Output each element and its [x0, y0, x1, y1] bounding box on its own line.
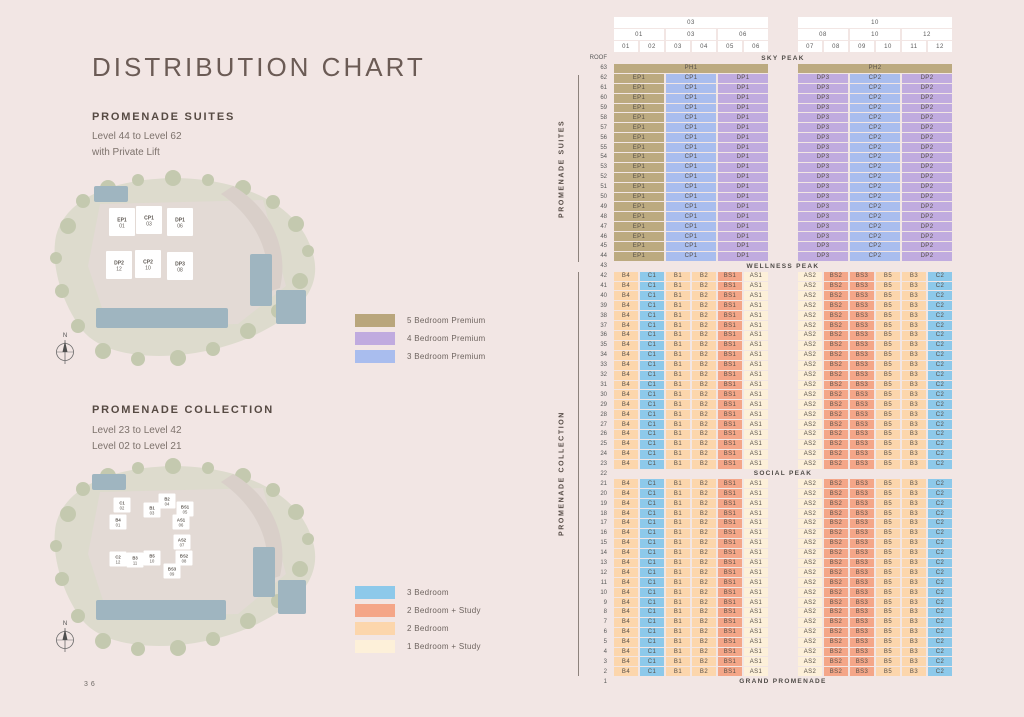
unit-cell: B3 — [902, 519, 926, 528]
collection-level-range-1: Level 23 to Level 42 — [92, 423, 182, 439]
unit-cell: C1 — [640, 608, 664, 617]
unit-cell: BS3 — [850, 588, 874, 597]
unit-cell: C1 — [640, 272, 664, 281]
unit-cell: B5 — [876, 568, 900, 577]
unit-cell: BS2 — [824, 361, 848, 370]
unit-cell: B1 — [666, 608, 690, 617]
unit-cell: BS1 — [718, 499, 742, 508]
unit-cell: DP3 — [798, 163, 848, 172]
unit-cell: EP1 — [614, 74, 664, 83]
unit-cell: DP3 — [798, 183, 848, 192]
unit-cell: B2 — [692, 648, 716, 657]
compass-north-label: N — [63, 333, 67, 339]
unit-cell: AS1 — [744, 430, 768, 439]
unit-cell: DP3 — [798, 193, 848, 202]
unit-cell: C1 — [640, 331, 664, 340]
floor-number: 27 — [588, 420, 612, 429]
unit-cell: B4 — [614, 489, 638, 498]
legend-swatch — [355, 350, 395, 363]
unit-cell: C1 — [640, 479, 664, 488]
unit-cell: C2 — [928, 341, 952, 350]
unit-cell: BS1 — [718, 568, 742, 577]
building-stack: 12 — [116, 267, 122, 273]
unit-cell: B4 — [614, 499, 638, 508]
unit-cell: B4 — [614, 311, 638, 320]
unit-cell: BS2 — [824, 648, 848, 657]
unit-cell: B1 — [666, 440, 690, 449]
unit-cell: B5 — [876, 381, 900, 390]
unit-cell: B3 — [902, 648, 926, 657]
unit-cell: C2 — [928, 618, 952, 627]
unit-cell: B2 — [692, 381, 716, 390]
building-stack: 02 — [120, 506, 125, 511]
bracket-collection — [578, 272, 579, 676]
unit-cell: B1 — [666, 618, 690, 627]
unit-cell: BS1 — [718, 341, 742, 350]
stack-group-header: 03 — [666, 29, 716, 40]
building-stack: 03 — [146, 222, 152, 228]
unit-cell: BS1 — [718, 400, 742, 409]
unit-cell: CP1 — [666, 232, 716, 241]
stack-group-header: 01 — [614, 29, 664, 40]
unit-cell: AS1 — [744, 568, 768, 577]
unit-cell: C1 — [640, 371, 664, 380]
unit-cell: AS2 — [798, 578, 822, 587]
unit-cell: C1 — [640, 450, 664, 459]
unit-cell: C2 — [928, 272, 952, 281]
unit-cell: C1 — [640, 341, 664, 350]
unit-cell: EP1 — [614, 252, 664, 261]
unit-cell: B4 — [614, 291, 638, 300]
unit-cell: BS1 — [718, 361, 742, 370]
unit-cell: AS2 — [798, 499, 822, 508]
unit-cell: AS2 — [798, 282, 822, 291]
unit-cell: B5 — [876, 489, 900, 498]
stack-group-header: 06 — [718, 29, 768, 40]
unit-cell: DP2 — [902, 183, 952, 192]
unit-cell: DP2 — [902, 123, 952, 132]
building-stack: 11 — [133, 561, 138, 566]
unit-cell: EP1 — [614, 202, 664, 211]
unit-cell: B3 — [902, 341, 926, 350]
unit-cell: C2 — [928, 657, 952, 666]
unit-cell: B1 — [666, 479, 690, 488]
unit-cell: B5 — [876, 519, 900, 528]
unit-cell: C2 — [928, 588, 952, 597]
unit-cell: B1 — [666, 509, 690, 518]
unit-cell: B4 — [614, 440, 638, 449]
unit-cell: BS1 — [718, 628, 742, 637]
unit-cell: B3 — [902, 400, 926, 409]
stack-header: 07 — [798, 41, 822, 52]
floor-number: 45 — [588, 242, 612, 251]
unit-cell: BS2 — [824, 657, 848, 666]
unit-cell: B4 — [614, 667, 638, 676]
unit-cell: B1 — [666, 529, 690, 538]
unit-cell: BS3 — [850, 450, 874, 459]
unit-cell: B2 — [692, 410, 716, 419]
unit-cell: B5 — [876, 608, 900, 617]
legend-label: 5 Bedroom Premium — [407, 316, 485, 325]
floor-number: 26 — [588, 430, 612, 439]
unit-cell: CP1 — [666, 252, 716, 261]
unit-cell: B3 — [902, 598, 926, 607]
floor-number: 41 — [588, 282, 612, 291]
unit-cell: AS2 — [798, 361, 822, 370]
unit-cell: B5 — [876, 400, 900, 409]
unit-cell: C2 — [928, 301, 952, 310]
unit-cell: B4 — [614, 608, 638, 617]
unit-cell: BS2 — [824, 460, 848, 469]
unit-cell: B1 — [666, 321, 690, 330]
suites-private-lift-note: with Private Lift — [92, 145, 160, 161]
legend-item: 2 Bedroom + Study — [355, 604, 481, 617]
brochure-page: DISTRIBUTION CHART PROMENADE SUITES Leve… — [0, 0, 1024, 717]
unit-cell: B5 — [876, 390, 900, 399]
unit-cell: C2 — [928, 608, 952, 617]
unit-cell: AS1 — [744, 529, 768, 538]
unit-cell: AS2 — [798, 420, 822, 429]
floor-number: 31 — [588, 381, 612, 390]
unit-cell: BS3 — [850, 509, 874, 518]
unit-cell: B1 — [666, 291, 690, 300]
unit-cell: BS2 — [824, 529, 848, 538]
unit-cell: C2 — [928, 628, 952, 637]
unit-cell: AS2 — [798, 648, 822, 657]
floor-number: 47 — [588, 222, 612, 231]
unit-cell: B1 — [666, 430, 690, 439]
unit-cell: B4 — [614, 638, 638, 647]
unit-cell: B4 — [614, 351, 638, 360]
unit-cell: B5 — [876, 450, 900, 459]
unit-cell: C2 — [928, 489, 952, 498]
unit-cell: AS2 — [798, 301, 822, 310]
legend-item: 3 Bedroom Premium — [355, 350, 485, 363]
unit-cell: AS1 — [744, 381, 768, 390]
unit-cell: C2 — [928, 519, 952, 528]
unit-cell: C2 — [928, 400, 952, 409]
unit-cell: B3 — [902, 618, 926, 627]
unit-cell: B4 — [614, 598, 638, 607]
unit-cell: B4 — [614, 371, 638, 380]
unit-cell: C1 — [640, 578, 664, 587]
unit-cell: AS2 — [798, 638, 822, 647]
unit-cell: C1 — [640, 559, 664, 568]
building-stack: 06 — [177, 224, 183, 230]
unit-cell: BS1 — [718, 311, 742, 320]
unit-cell: B3 — [902, 371, 926, 380]
unit-cell: CP1 — [666, 84, 716, 93]
unit-cell: B3 — [902, 578, 926, 587]
building-stack: 12 — [116, 560, 121, 565]
unit-cell: C2 — [928, 311, 952, 320]
unit-cell: AS2 — [798, 272, 822, 281]
compass-north-label: N — [63, 621, 67, 627]
unit-cell: DP2 — [902, 202, 952, 211]
unit-cell: B4 — [614, 648, 638, 657]
unit-cell: BS2 — [824, 390, 848, 399]
unit-cell: B2 — [692, 420, 716, 429]
unit-cell: CP1 — [666, 202, 716, 211]
unit-cell: BS2 — [824, 628, 848, 637]
unit-cell: EP1 — [614, 133, 664, 142]
unit-cell: CP2 — [850, 212, 900, 221]
unit-cell: BS3 — [850, 400, 874, 409]
unit-cell: BS3 — [850, 628, 874, 637]
unit-cell: B2 — [692, 628, 716, 637]
unit-cell: AS1 — [744, 341, 768, 350]
unit-cell: B3 — [902, 489, 926, 498]
floor-number: 58 — [588, 113, 612, 122]
unit-cell: B5 — [876, 539, 900, 548]
unit-cell: DP1 — [718, 173, 768, 182]
unit-cell: BS3 — [850, 489, 874, 498]
unit-cell: C2 — [928, 638, 952, 647]
collection-heading: PROMENADE COLLECTION — [92, 404, 274, 416]
unit-cell: C1 — [640, 440, 664, 449]
unit-cell: B5 — [876, 559, 900, 568]
unit-cell: B5 — [876, 410, 900, 419]
unit-cell: B3 — [902, 509, 926, 518]
unit-cell: CP2 — [850, 104, 900, 113]
unit-cell: B3 — [902, 420, 926, 429]
unit-cell: CP2 — [850, 173, 900, 182]
unit-cell: B5 — [876, 598, 900, 607]
unit-cell: BS3 — [850, 420, 874, 429]
unit-cell: BS2 — [824, 559, 848, 568]
unit-cell: EP1 — [614, 113, 664, 122]
stack-header: 06 — [744, 41, 768, 52]
unit-cell: B2 — [692, 578, 716, 587]
compass-icon: N — [57, 621, 74, 652]
unit-cell: B1 — [666, 499, 690, 508]
unit-cell: BS2 — [824, 272, 848, 281]
unit-cell: B4 — [614, 509, 638, 518]
unit-cell: B1 — [666, 282, 690, 291]
legend-item: 4 Bedroom Premium — [355, 332, 485, 345]
unit-cell: B5 — [876, 272, 900, 281]
unit-cell: C1 — [640, 301, 664, 310]
unit-cell: AS2 — [798, 400, 822, 409]
unit-cell: AS2 — [798, 311, 822, 320]
unit-cell: AS2 — [798, 430, 822, 439]
unit-cell: B3 — [902, 499, 926, 508]
unit-cell: B3 — [902, 549, 926, 558]
unit-cell: AS1 — [744, 440, 768, 449]
unit-cell: AS1 — [744, 638, 768, 647]
unit-cell: AS2 — [798, 351, 822, 360]
unit-cell: BS2 — [824, 489, 848, 498]
unit-cell: B2 — [692, 311, 716, 320]
unit-cell: BS3 — [850, 460, 874, 469]
unit-cell: DP2 — [902, 104, 952, 113]
floor-number: 23 — [588, 460, 612, 469]
unit-cell: EP1 — [614, 84, 664, 93]
unit-cell: CP1 — [666, 113, 716, 122]
unit-cell: B5 — [876, 351, 900, 360]
unit-cell: PH2 — [798, 64, 952, 73]
floor-number: 19 — [588, 499, 612, 508]
unit-cell: B4 — [614, 420, 638, 429]
floor-number: 22 — [588, 470, 612, 479]
unit-cell: AS1 — [744, 618, 768, 627]
unit-cell: BS2 — [824, 479, 848, 488]
unit-cell: CP1 — [666, 133, 716, 142]
unit-cell: AS2 — [798, 291, 822, 300]
unit-cell: AS1 — [744, 301, 768, 310]
roof-label: ROOF — [588, 53, 612, 63]
unit-cell: B4 — [614, 272, 638, 281]
floor-number: 61 — [588, 84, 612, 93]
unit-cell: B1 — [666, 400, 690, 409]
unit-cell: B1 — [666, 578, 690, 587]
unit-cell: B4 — [614, 568, 638, 577]
floor-number: 7 — [588, 618, 612, 627]
floor-number: 6 — [588, 628, 612, 637]
unit-cell: B4 — [614, 400, 638, 409]
unit-cell: AS1 — [744, 400, 768, 409]
unit-cell: AS2 — [798, 667, 822, 676]
unit-cell: C1 — [640, 638, 664, 647]
floor-number: 34 — [588, 351, 612, 360]
building-stack: 03 — [150, 511, 155, 516]
floor-number: 57 — [588, 123, 612, 132]
unit-cell: B2 — [692, 430, 716, 439]
unit-cell: BS1 — [718, 648, 742, 657]
unit-cell: CP1 — [666, 153, 716, 162]
unit-cell: AS2 — [798, 371, 822, 380]
unit-cell: B1 — [666, 519, 690, 528]
unit-cell: B3 — [902, 450, 926, 459]
unit-cell: B3 — [902, 657, 926, 666]
unit-cell: C2 — [928, 539, 952, 548]
floor-number: 42 — [588, 272, 612, 281]
unit-cell: DP3 — [798, 173, 848, 182]
unit-cell: BS1 — [718, 618, 742, 627]
unit-cell: BS1 — [718, 638, 742, 647]
unit-cell: BS3 — [850, 390, 874, 399]
unit-cell: DP2 — [902, 74, 952, 83]
unit-cell: DP2 — [902, 193, 952, 202]
unit-cell: CP2 — [850, 193, 900, 202]
unit-cell: BS3 — [850, 341, 874, 350]
unit-cell: B2 — [692, 539, 716, 548]
unit-cell: BS2 — [824, 400, 848, 409]
floor-number: 63 — [588, 64, 612, 73]
unit-cell: BS3 — [850, 361, 874, 370]
unit-cell: AS1 — [744, 588, 768, 597]
legend-item: 2 Bedroom — [355, 622, 481, 635]
unit-cell: B2 — [692, 608, 716, 617]
unit-cell: AS1 — [744, 667, 768, 676]
unit-cell: B2 — [692, 272, 716, 281]
unit-cell: C2 — [928, 390, 952, 399]
unit-cell: C1 — [640, 420, 664, 429]
unit-cell: CP1 — [666, 163, 716, 172]
floor-number: 14 — [588, 549, 612, 558]
unit-cell: B4 — [614, 361, 638, 370]
unit-cell: C2 — [928, 499, 952, 508]
unit-cell: BS2 — [824, 618, 848, 627]
unit-cell: AS2 — [798, 519, 822, 528]
unit-cell: C2 — [928, 361, 952, 370]
unit-cell: B3 — [902, 628, 926, 637]
unit-cell: AS1 — [744, 311, 768, 320]
unit-cell: B5 — [876, 509, 900, 518]
unit-cell: BS3 — [850, 282, 874, 291]
unit-cell: B1 — [666, 351, 690, 360]
unit-cell: DP2 — [902, 84, 952, 93]
unit-cell: B5 — [876, 301, 900, 310]
unit-cell: DP1 — [718, 123, 768, 132]
unit-cell: DP3 — [798, 232, 848, 241]
unit-cell: B3 — [902, 410, 926, 419]
unit-cell: B5 — [876, 341, 900, 350]
page-title: DISTRIBUTION CHART — [92, 52, 426, 83]
unit-cell: B1 — [666, 272, 690, 281]
floor-number: 48 — [588, 212, 612, 221]
floor-number: 20 — [588, 489, 612, 498]
unit-cell: AS1 — [744, 479, 768, 488]
unit-cell: B3 — [902, 638, 926, 647]
legend-label: 3 Bedroom Premium — [407, 352, 485, 361]
unit-cell: B1 — [666, 331, 690, 340]
unit-cell: B5 — [876, 282, 900, 291]
unit-cell: BS2 — [824, 608, 848, 617]
unit-cell: DP1 — [718, 222, 768, 231]
unit-cell: B1 — [666, 648, 690, 657]
unit-cell: C2 — [928, 460, 952, 469]
unit-cell: B1 — [666, 371, 690, 380]
unit-cell: BS2 — [824, 440, 848, 449]
unit-cell: C1 — [640, 291, 664, 300]
unit-cell: CP1 — [666, 222, 716, 231]
unit-cell: B1 — [666, 667, 690, 676]
unit-cell: B2 — [692, 361, 716, 370]
unit-cell: AS1 — [744, 608, 768, 617]
unit-cell: DP3 — [798, 104, 848, 113]
stack-header: 11 — [902, 41, 926, 52]
unit-cell: CP2 — [850, 232, 900, 241]
unit-cell: B1 — [666, 361, 690, 370]
building-stack: 06 — [179, 523, 184, 528]
floor-number: 9 — [588, 598, 612, 607]
unit-cell: B2 — [692, 509, 716, 518]
unit-cell: C1 — [640, 628, 664, 637]
unit-cell: C2 — [928, 321, 952, 330]
unit-cell: B5 — [876, 440, 900, 449]
building-stack: 10 — [145, 266, 151, 272]
floor-number: 28 — [588, 410, 612, 419]
unit-cell: B4 — [614, 301, 638, 310]
unit-cell: DP1 — [718, 183, 768, 192]
stack-group-header: 12 — [902, 29, 952, 40]
unit-cell: B5 — [876, 549, 900, 558]
unit-cell: CP2 — [850, 84, 900, 93]
building-stack: 08 — [182, 559, 187, 564]
unit-cell: B2 — [692, 529, 716, 538]
unit-cell: AS1 — [744, 410, 768, 419]
unit-cell: BS2 — [824, 638, 848, 647]
site-plan-suites: EP101CP103DP106DP212CP210DP308 N — [38, 166, 330, 378]
unit-cell: B5 — [876, 371, 900, 380]
unit-cell: B5 — [876, 657, 900, 666]
unit-cell: C2 — [928, 410, 952, 419]
unit-cell: BS3 — [850, 311, 874, 320]
unit-cell: B2 — [692, 450, 716, 459]
unit-cell: B5 — [876, 479, 900, 488]
unit-cell: B2 — [692, 400, 716, 409]
